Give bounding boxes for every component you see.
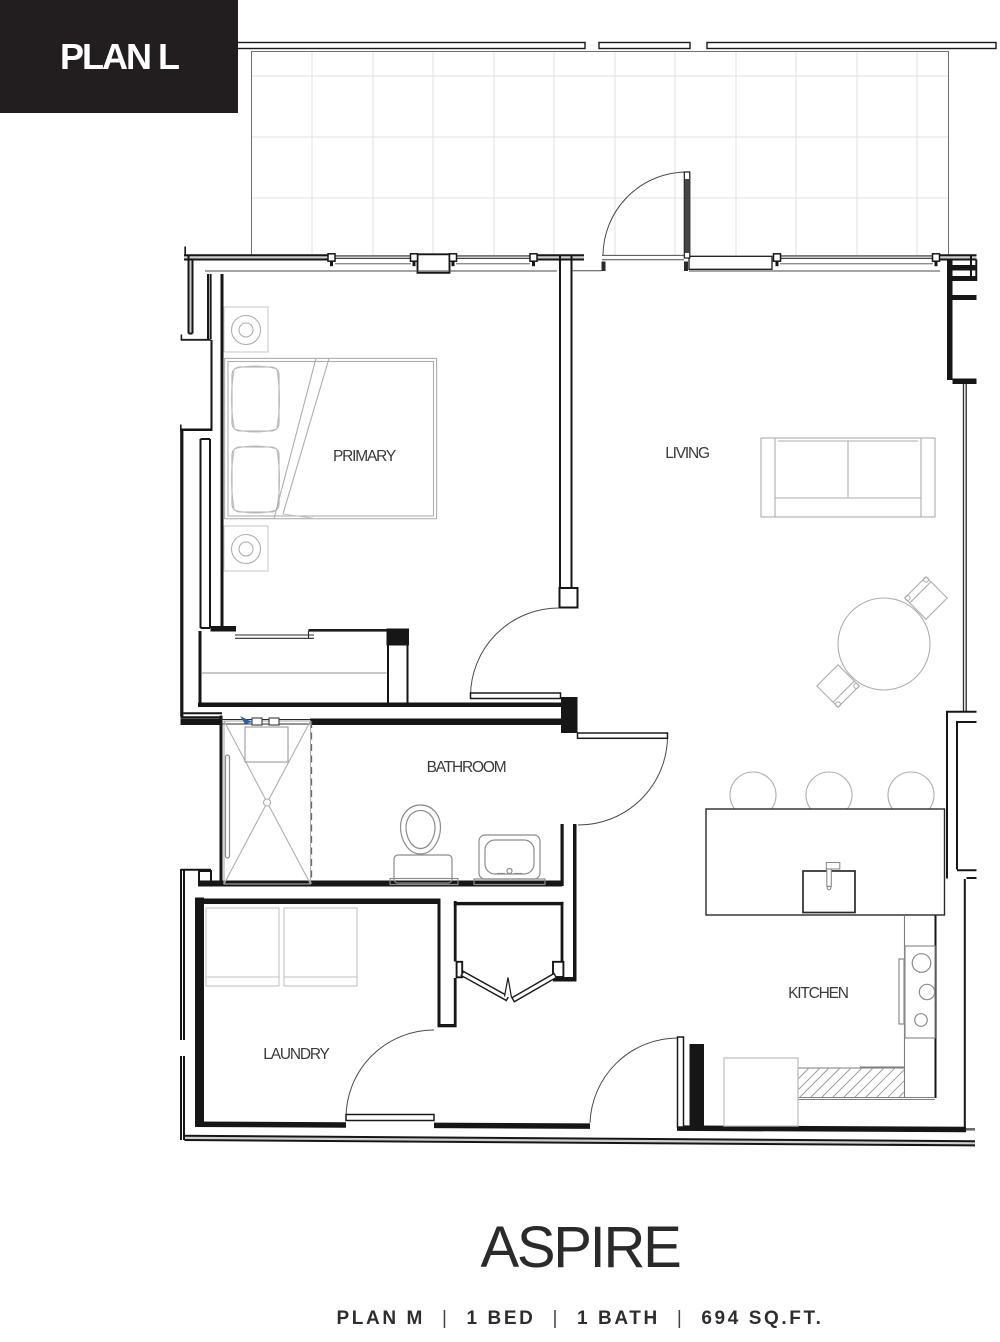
svg-text:KITCHEN: KITCHEN — [788, 985, 848, 1002]
svg-text:LAUNDRY: LAUNDRY — [263, 1046, 329, 1063]
svg-text:LIVING: LIVING — [665, 445, 709, 462]
svg-text:PRIMARY: PRIMARY — [333, 448, 396, 465]
svg-text:BATHROOM: BATHROOM — [427, 759, 506, 776]
